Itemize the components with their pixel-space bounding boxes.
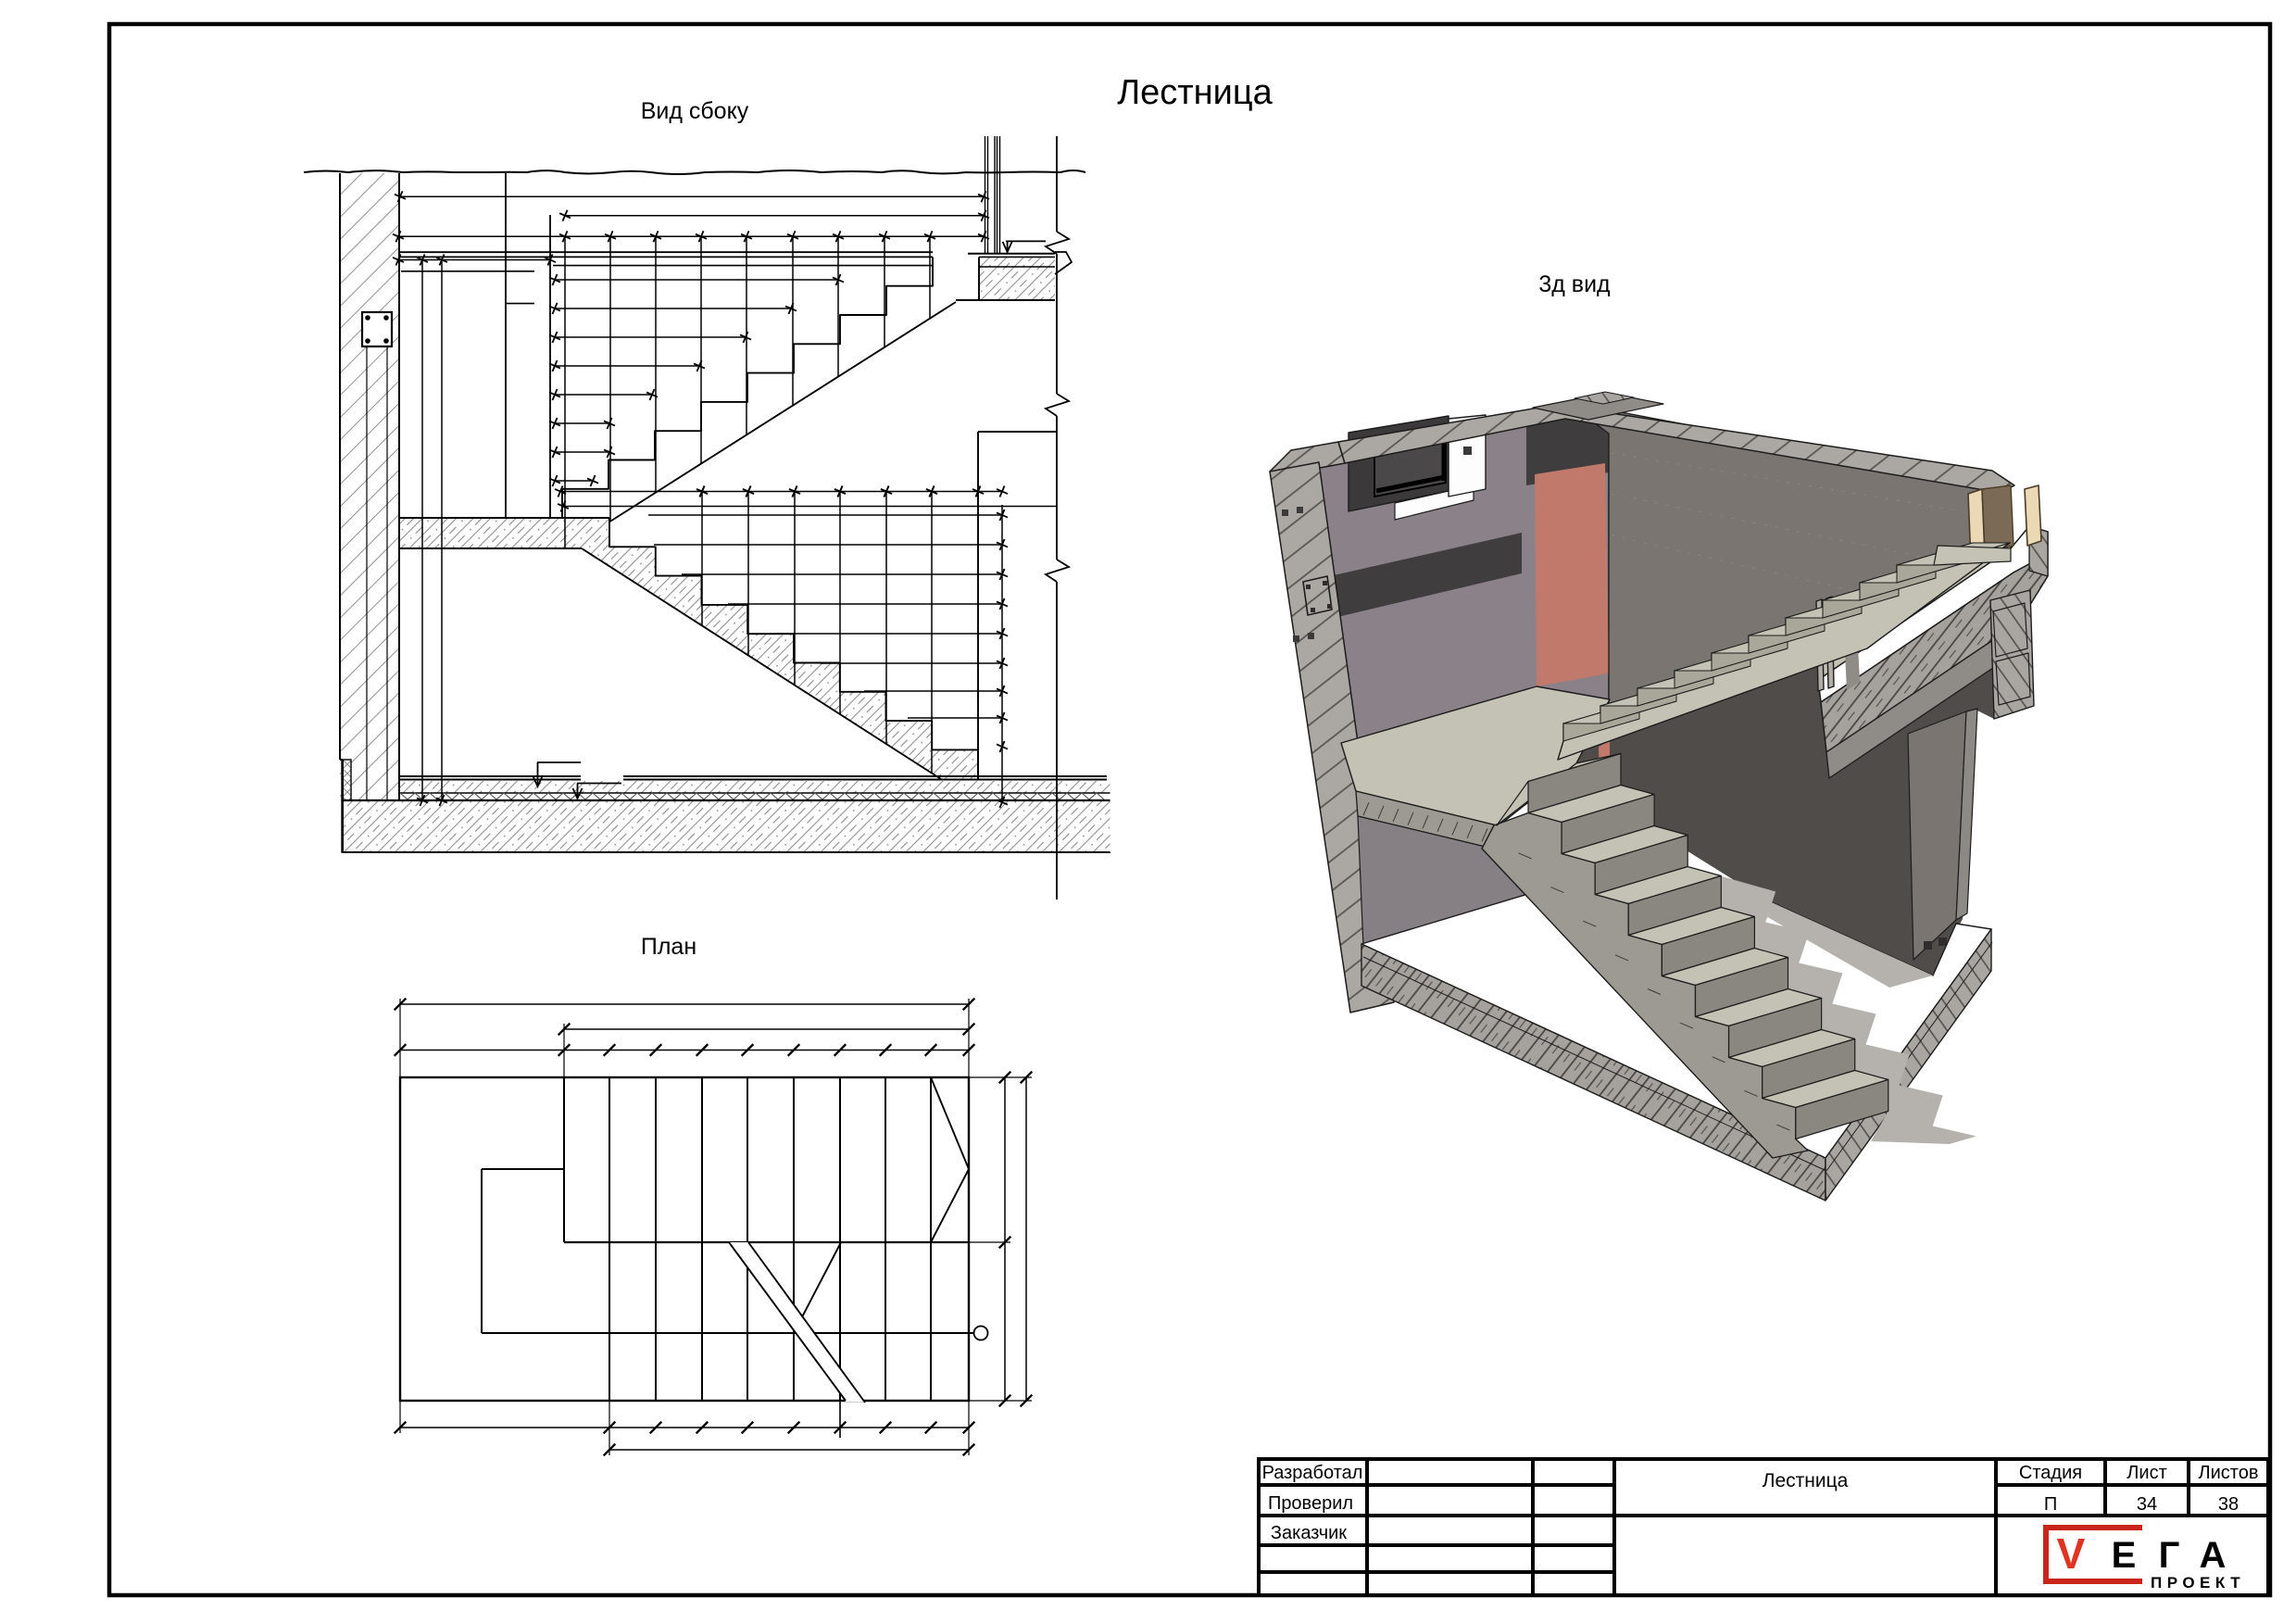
svg-text:Г: Г xyxy=(2159,1535,2180,1576)
svg-text:Проверил: Проверил xyxy=(1268,1493,1353,1514)
svg-text:Заказчик: Заказчик xyxy=(1271,1523,1347,1543)
svg-text:П: П xyxy=(2044,1494,2057,1515)
svg-text:38: 38 xyxy=(2218,1494,2239,1515)
svg-text:Листов: Листов xyxy=(2199,1463,2259,1483)
svg-text:План: План xyxy=(641,934,696,960)
svg-text:ПРОЕКТ: ПРОЕКТ xyxy=(2151,1574,2245,1592)
svg-text:А: А xyxy=(2200,1535,2227,1576)
svg-text:Лестница: Лестница xyxy=(1117,73,1273,112)
svg-text:Лестница: Лестница xyxy=(1763,1470,1849,1491)
svg-text:Стадия: Стадия xyxy=(2019,1463,2082,1483)
svg-text:3д вид: 3д вид xyxy=(1538,271,1611,297)
svg-text:Е: Е xyxy=(2112,1535,2137,1576)
svg-text:34: 34 xyxy=(2137,1494,2157,1515)
svg-text:Вид сбоку: Вид сбоку xyxy=(641,98,749,124)
svg-text:V: V xyxy=(2057,1529,2086,1578)
svg-text:Лист: Лист xyxy=(2127,1463,2166,1483)
svg-text:Разработал: Разработал xyxy=(1262,1463,1363,1483)
